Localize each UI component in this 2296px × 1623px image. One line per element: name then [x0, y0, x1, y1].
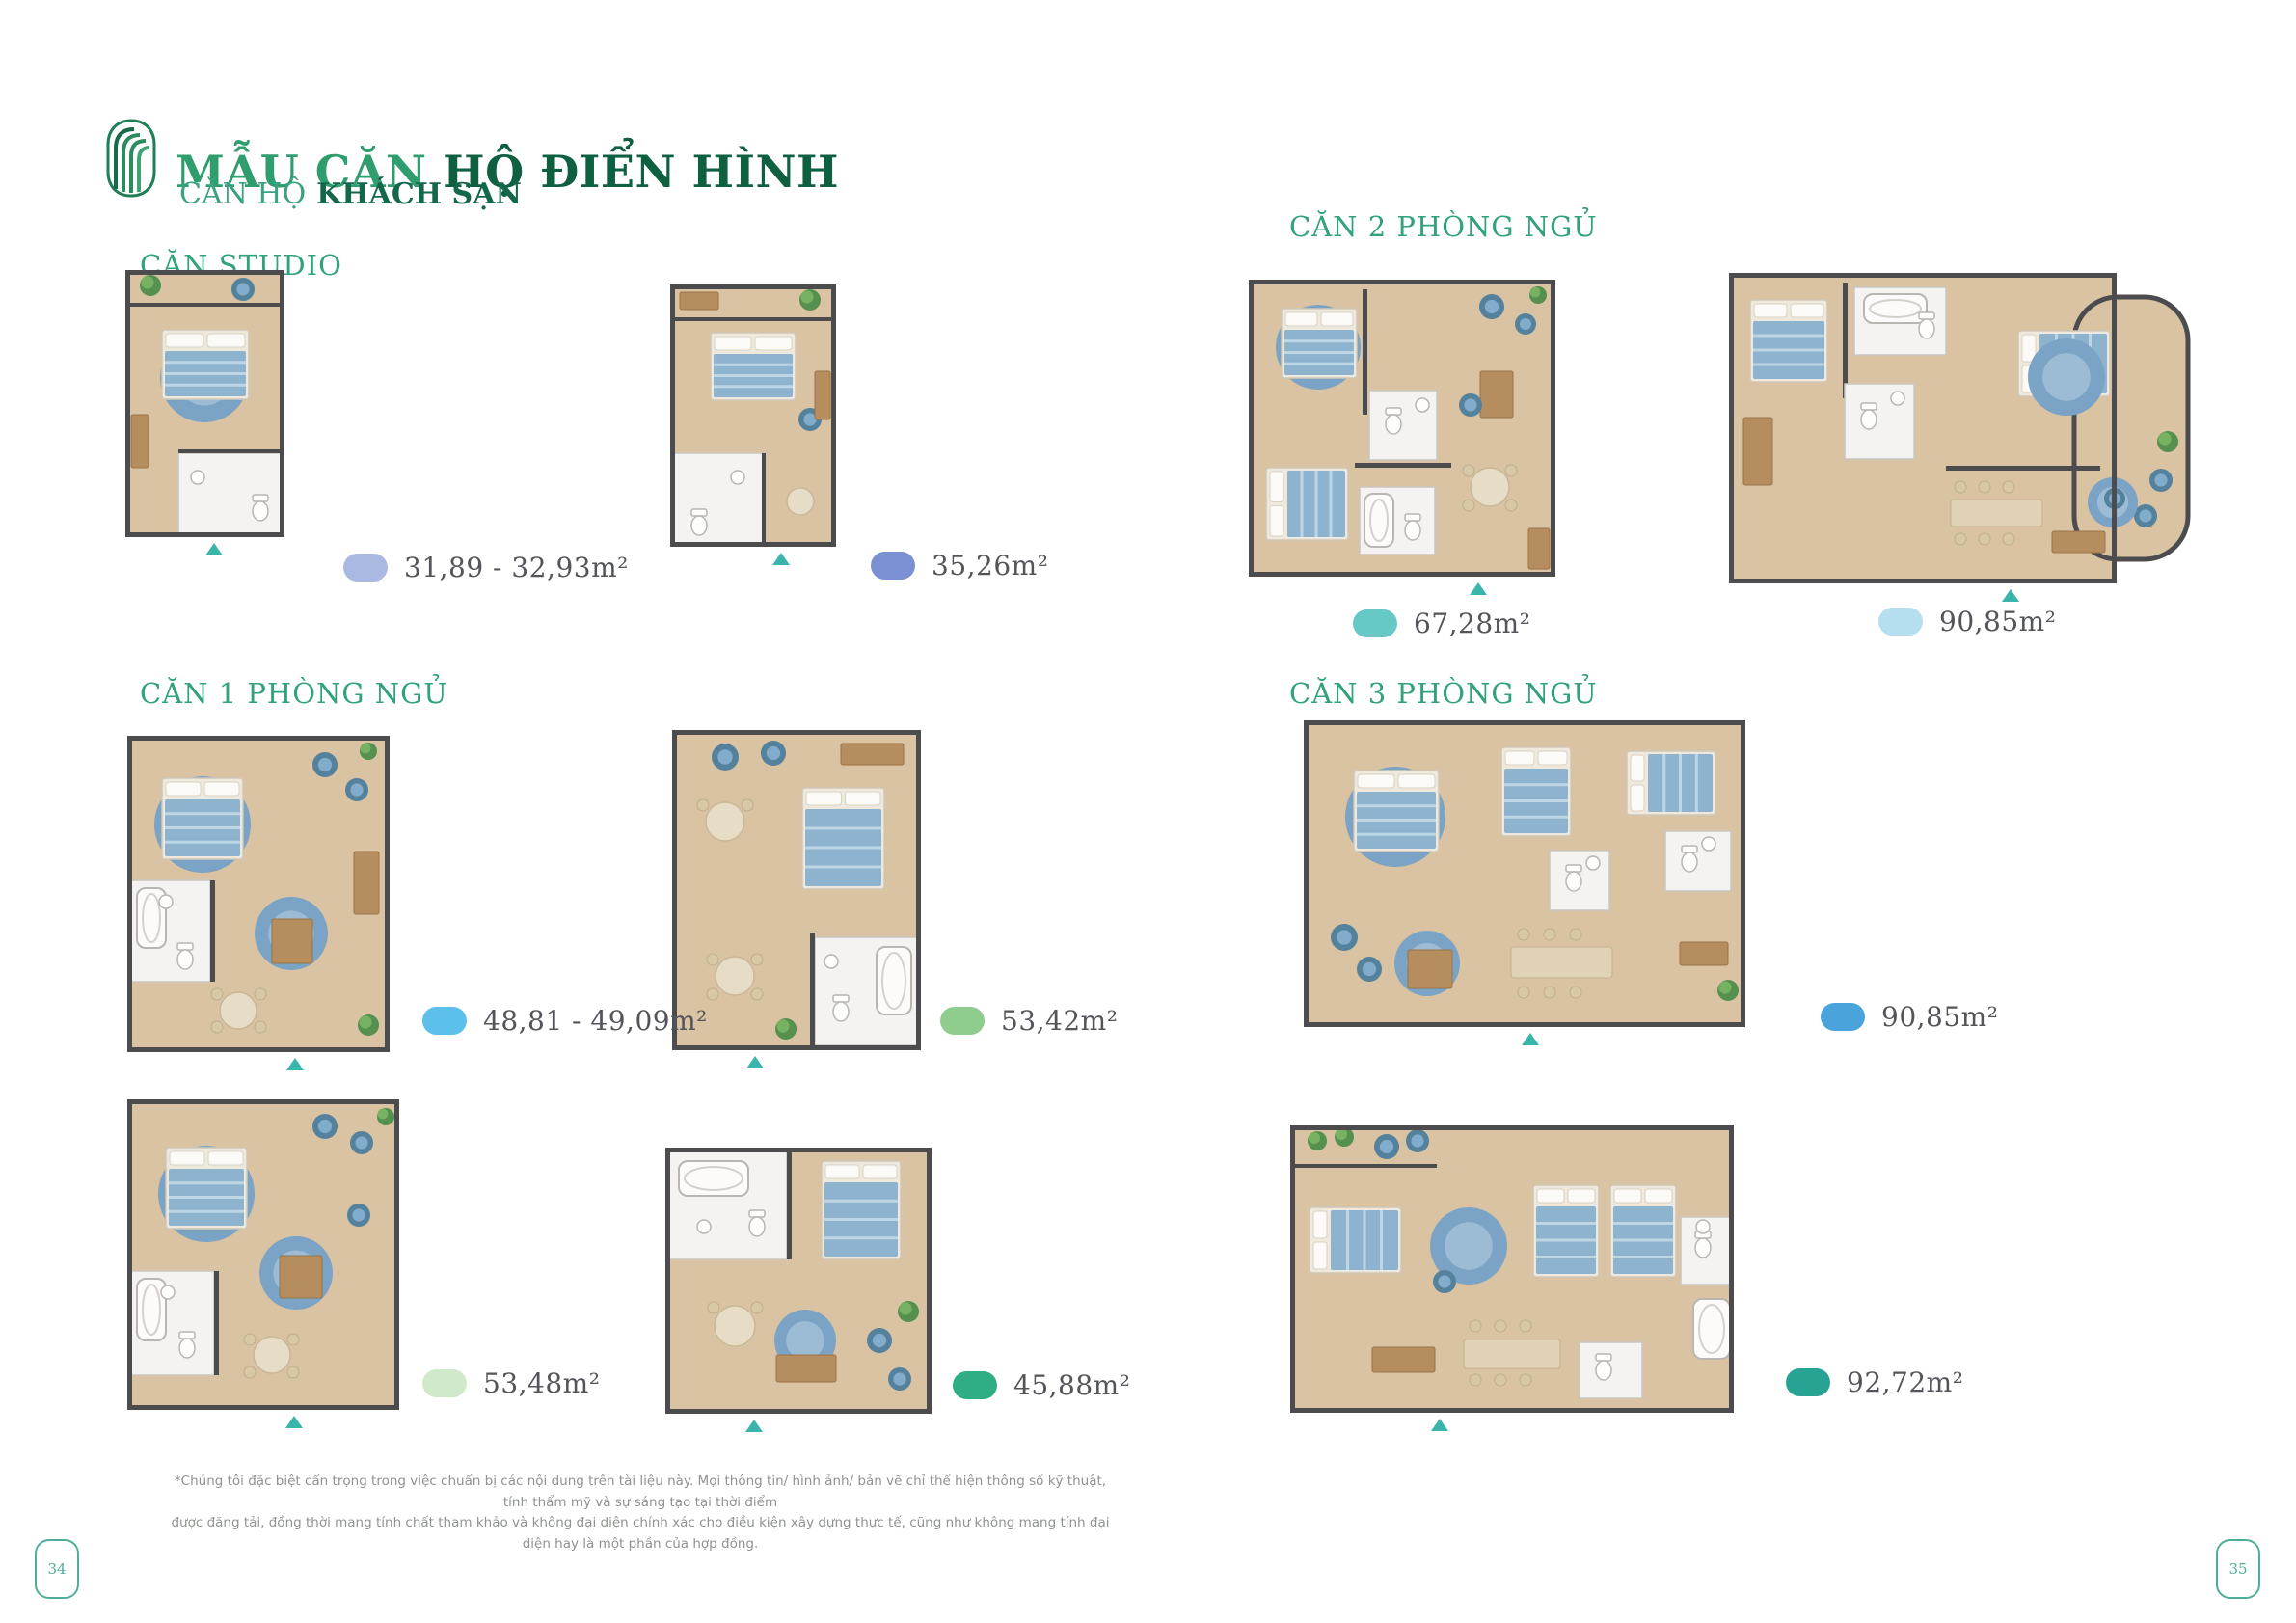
area-value: 48,81 - 49,09m² [483, 1005, 708, 1037]
area-value: 90,85m² [1939, 606, 2056, 637]
entrance-direction-arrow [205, 543, 223, 555]
floorplan-2br-b [1729, 273, 2194, 609]
area-value: 53,48m² [483, 1367, 600, 1399]
floorplan-2br-a [1249, 280, 1555, 602]
page-subtitle: CĂN HỘKHÁCH SẠN [179, 177, 522, 211]
brochure-page: { "header": { "title_part1": "MẪU CĂN", … [0, 0, 2296, 1623]
area-color-swatch [422, 1369, 467, 1397]
floorplan-1br-b [672, 730, 921, 1075]
area-value: 92,72m² [1847, 1366, 1963, 1398]
floorplan-studio-a [125, 270, 284, 562]
area-color-swatch [343, 554, 388, 582]
floorplan-studio-b [670, 284, 836, 572]
entrance-direction-arrow [746, 1056, 764, 1068]
page-number-right: 35 [2216, 1539, 2260, 1599]
area-value: 45,88m² [1013, 1369, 1130, 1401]
area-value: 35,26m² [932, 550, 1048, 582]
entrance-direction-arrow [1470, 582, 1487, 595]
entrance-direction-arrow [772, 553, 790, 565]
floorplan-3br-b [1290, 1125, 1734, 1438]
area-color-swatch [1821, 1003, 1865, 1031]
entrance-direction-arrow [1431, 1419, 1448, 1431]
disclaimer-text: *Chúng tôi đặc biệt cẩn trọng trong việc… [162, 1472, 1119, 1555]
area-legend-1br-c: 53,48m² [422, 1367, 600, 1399]
area-value: 90,85m² [1881, 1001, 1998, 1033]
area-legend-3br-b: 92,72m² [1786, 1366, 1963, 1398]
area-color-swatch [422, 1007, 467, 1035]
area-color-swatch [871, 552, 915, 580]
area-color-swatch [940, 1007, 985, 1035]
area-legend-studio-a: 31,89 - 32,93m² [343, 552, 629, 583]
entrance-direction-arrow [286, 1058, 304, 1070]
area-value: 31,89 - 32,93m² [404, 552, 629, 583]
area-value: 67,28m² [1414, 608, 1530, 639]
floorplan-1br-d [665, 1148, 932, 1439]
area-color-swatch [1353, 609, 1397, 637]
area-legend-1br-d: 45,88m² [953, 1369, 1130, 1401]
area-legend-1br-a: 48,81 - 49,09m² [422, 1005, 708, 1037]
section-label-3br: CĂN 3 PHÒNG NGỦ [1289, 677, 1598, 710]
subtitle-light: CĂN HỘ [179, 177, 306, 211]
floorplan-1br-a [127, 736, 390, 1077]
subtitle-bold: KHÁCH SẠN [316, 177, 522, 211]
entrance-direction-arrow [285, 1416, 303, 1428]
area-color-swatch [1786, 1368, 1830, 1396]
entrance-direction-arrow [2002, 589, 2019, 602]
area-legend-2br-b: 90,85m² [1878, 606, 2056, 637]
area-color-swatch [1878, 608, 1923, 636]
area-legend-1br-b: 53,42m² [940, 1005, 1118, 1037]
area-legend-studio-b: 35,26m² [871, 550, 1048, 582]
disclaimer-line-2: được đăng tải, đồng thời mang tính chất … [162, 1513, 1119, 1555]
floorplan-3br-a [1304, 720, 1745, 1052]
section-label-2br: CĂN 2 PHÒNG NGỦ [1289, 210, 1598, 243]
disclaimer-line-1: *Chúng tôi đặc biệt cẩn trọng trong việc… [162, 1472, 1119, 1513]
section-label-1br: CĂN 1 PHÒNG NGỦ [140, 677, 448, 710]
area-legend-2br-a: 67,28m² [1353, 608, 1530, 639]
page-number-left: 34 [35, 1539, 79, 1599]
entrance-direction-arrow [745, 1420, 763, 1432]
brand-arch-stripes-logo-icon [99, 118, 163, 199]
area-legend-3br-a: 90,85m² [1821, 1001, 1998, 1033]
area-value: 53,42m² [1001, 1005, 1118, 1037]
entrance-direction-arrow [1522, 1033, 1539, 1045]
floorplan-1br-c [127, 1099, 399, 1435]
area-color-swatch [953, 1371, 997, 1399]
